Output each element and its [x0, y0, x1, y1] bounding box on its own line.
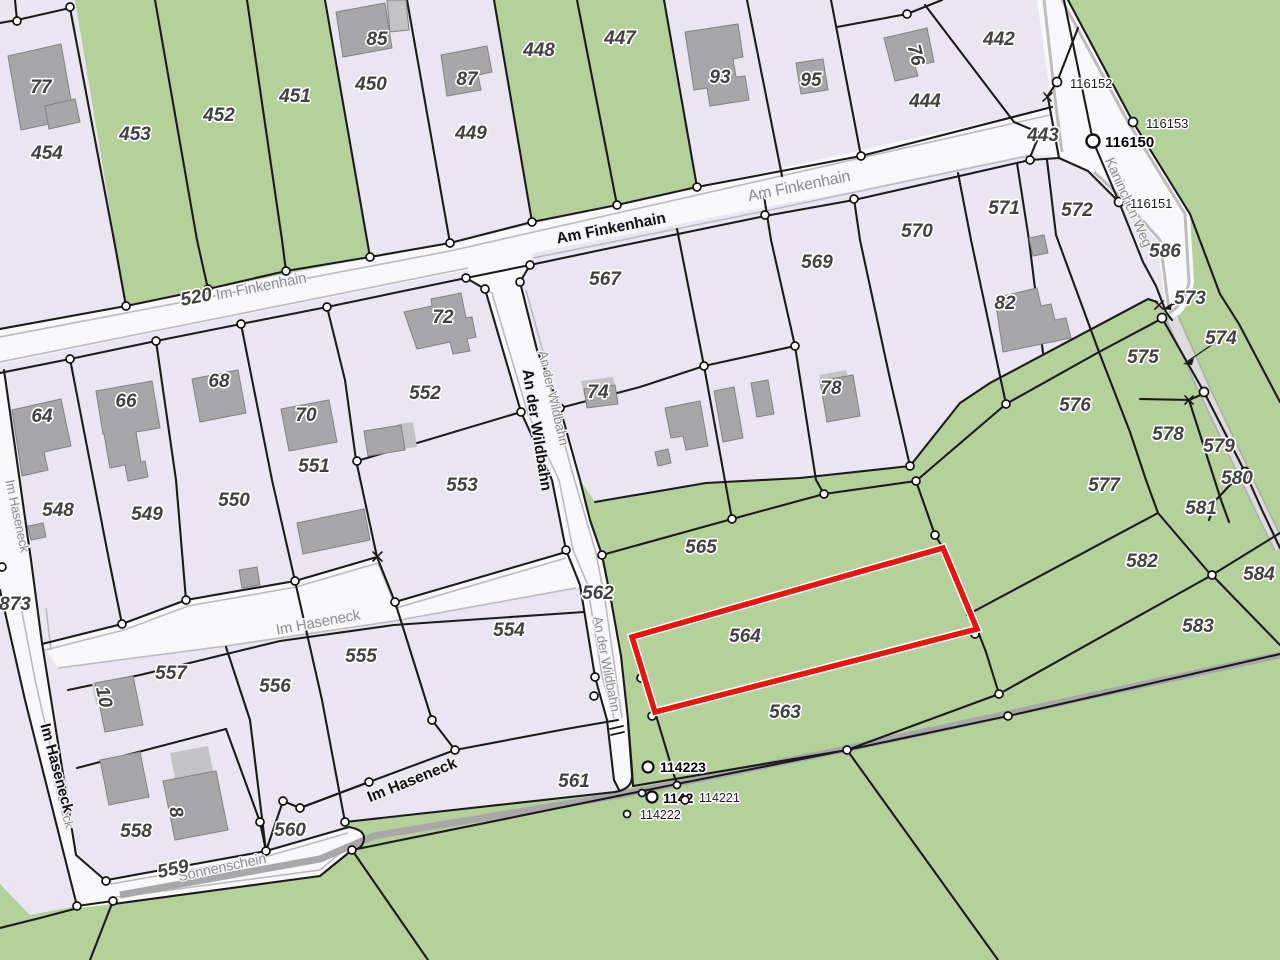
svg-text:575: 575	[1127, 347, 1159, 368]
svg-text:82: 82	[994, 293, 1016, 314]
svg-text:561: 561	[558, 771, 590, 792]
svg-text:78: 78	[820, 378, 842, 399]
svg-text:581: 581	[1185, 498, 1217, 519]
svg-text:586: 586	[1149, 241, 1181, 262]
svg-text:548: 548	[42, 500, 74, 521]
svg-text:451: 451	[278, 86, 311, 107]
svg-text:560: 560	[274, 820, 306, 841]
svg-text:555: 555	[345, 646, 377, 667]
svg-text:452: 452	[202, 105, 235, 126]
svg-text:579: 579	[1203, 436, 1235, 457]
svg-text:116152: 116152	[1070, 76, 1112, 91]
svg-text:443: 443	[1026, 125, 1059, 146]
svg-text:573: 573	[1174, 288, 1206, 309]
svg-text:450: 450	[354, 74, 387, 95]
svg-text:116153: 116153	[1146, 116, 1188, 131]
svg-text:574: 574	[1205, 328, 1237, 349]
svg-text:93: 93	[709, 67, 731, 88]
svg-text:454: 454	[30, 143, 63, 164]
svg-text:87: 87	[456, 69, 479, 90]
svg-text:77: 77	[30, 77, 53, 98]
svg-text:564: 564	[729, 626, 761, 647]
svg-text:578: 578	[1152, 424, 1184, 445]
svg-text:66: 66	[115, 391, 137, 412]
svg-text:572: 572	[1061, 200, 1093, 221]
svg-text:453: 453	[118, 124, 151, 145]
svg-text:562: 562	[582, 583, 614, 604]
svg-text:556: 556	[259, 676, 291, 697]
svg-text:95: 95	[800, 70, 822, 91]
svg-text:448: 448	[522, 40, 555, 61]
svg-text:580: 580	[1221, 468, 1253, 489]
svg-text:447: 447	[603, 28, 637, 49]
svg-text:70: 70	[295, 405, 317, 426]
svg-text:550: 550	[218, 490, 250, 511]
svg-text:873: 873	[0, 594, 31, 615]
svg-text:567: 567	[589, 269, 622, 290]
svg-text:444: 444	[908, 91, 941, 112]
svg-text:569: 569	[801, 252, 833, 273]
svg-text:72: 72	[432, 307, 454, 328]
svg-text:116151: 116151	[1130, 196, 1172, 211]
svg-text:558: 558	[120, 821, 152, 842]
svg-text:565: 565	[685, 537, 717, 558]
svg-text:114223: 114223	[660, 759, 706, 775]
svg-text:577: 577	[1088, 475, 1121, 496]
svg-text:570: 570	[901, 221, 933, 242]
svg-text:68: 68	[208, 371, 230, 392]
svg-text:563: 563	[769, 702, 801, 723]
svg-text:552: 552	[409, 383, 441, 404]
svg-text:571: 571	[988, 198, 1020, 219]
svg-text:64: 64	[31, 406, 53, 427]
svg-text:582: 582	[1126, 551, 1158, 572]
svg-text:576: 576	[1059, 395, 1091, 416]
svg-text:554: 554	[493, 620, 525, 641]
svg-text:583: 583	[1182, 616, 1214, 637]
svg-text:442: 442	[982, 29, 1015, 50]
svg-text:114222: 114222	[640, 808, 681, 822]
svg-text:557: 557	[155, 663, 188, 684]
svg-text:553: 553	[446, 475, 478, 496]
svg-text:584: 584	[1243, 564, 1275, 585]
svg-text:551: 551	[298, 456, 330, 477]
svg-text:549: 549	[131, 504, 163, 525]
svg-text:116150: 116150	[1105, 134, 1154, 151]
svg-text:85: 85	[366, 29, 388, 50]
svg-text:74: 74	[587, 382, 609, 403]
svg-text:114221: 114221	[699, 791, 740, 805]
svg-text:449: 449	[454, 123, 487, 144]
